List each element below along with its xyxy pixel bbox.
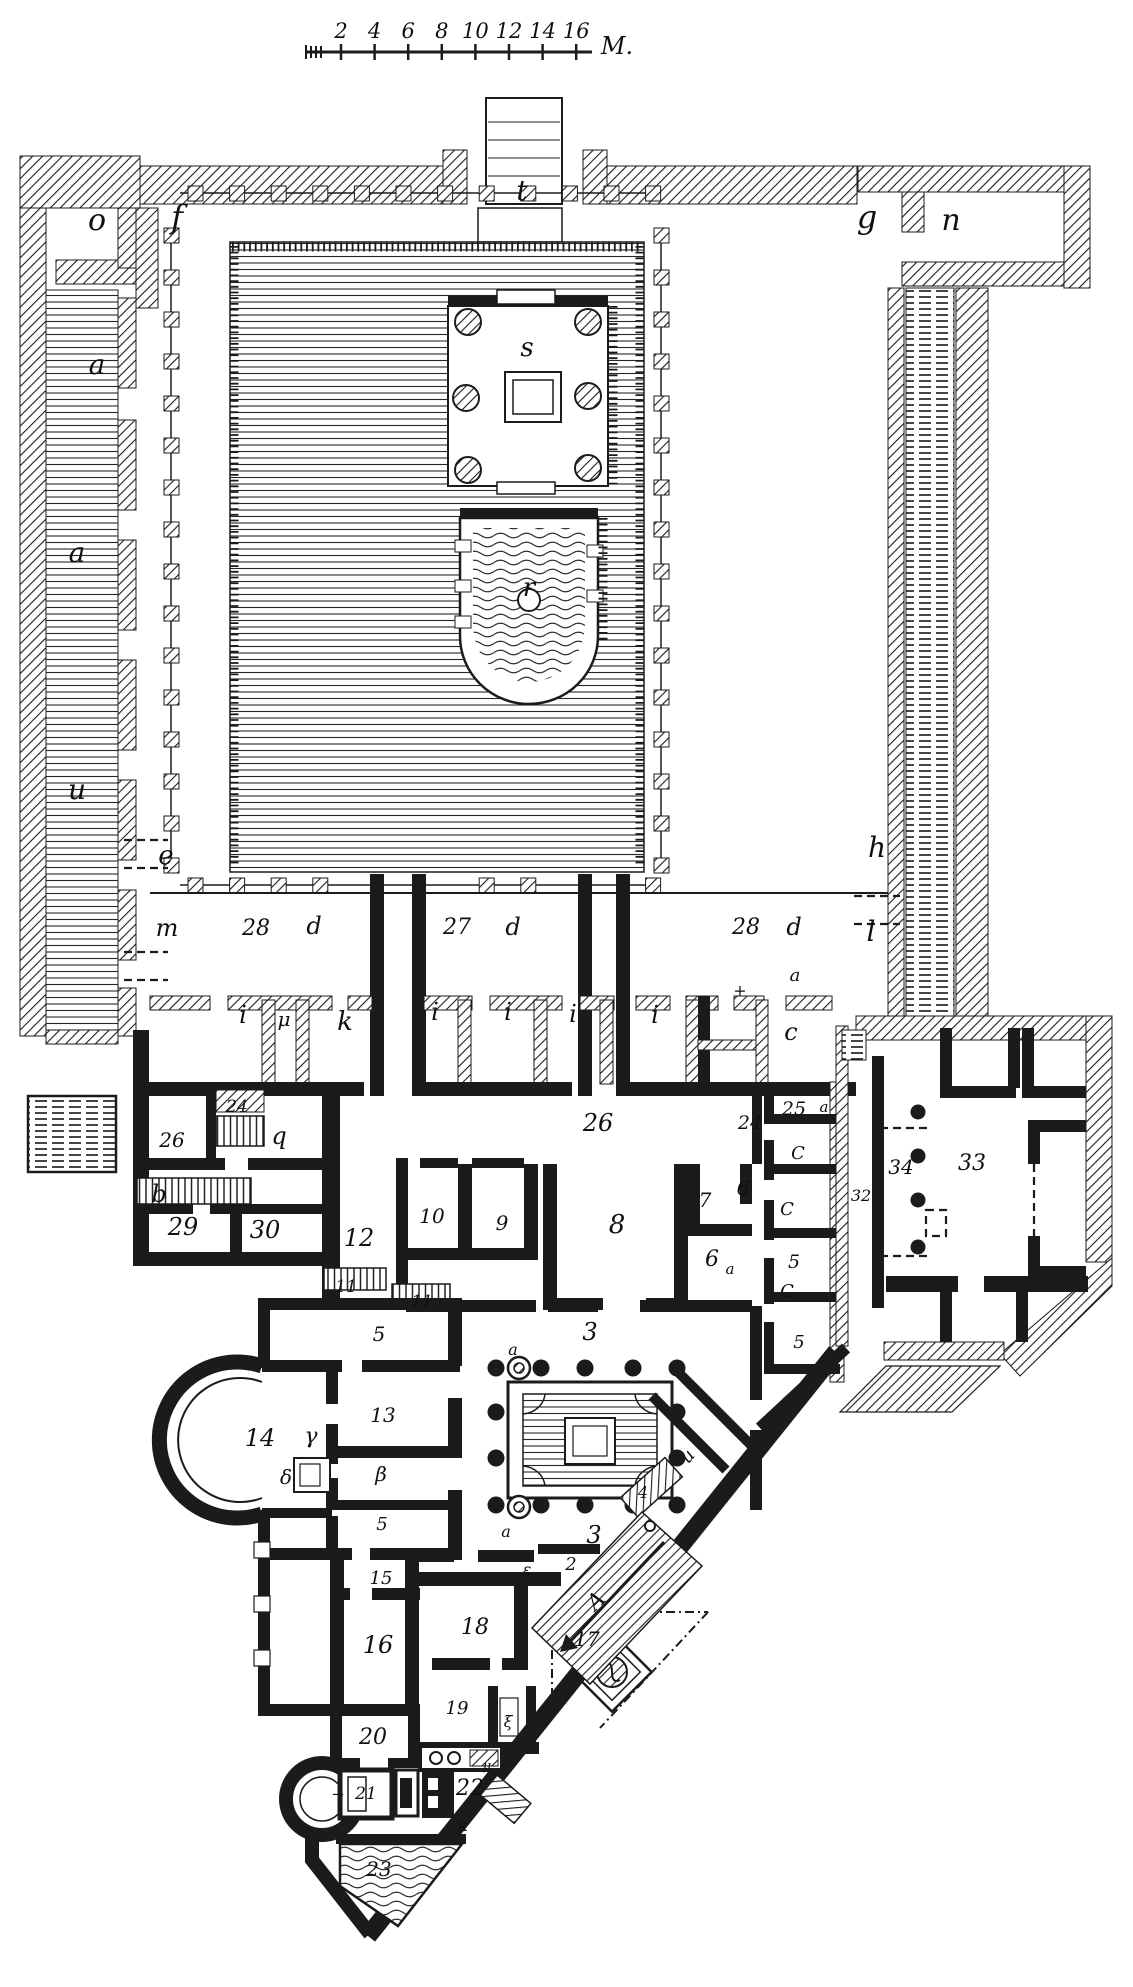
pillar: [271, 878, 286, 893]
pillar: [646, 878, 661, 893]
plan-label-ε: ε: [523, 1560, 532, 1579]
pillar: [654, 816, 669, 831]
plan-label-5: 5: [793, 1332, 804, 1353]
structure-s: [448, 290, 613, 494]
plan-label-7: 7: [699, 1188, 712, 1212]
plan-label-d: d: [786, 913, 801, 941]
plan-label-a: a: [790, 965, 801, 986]
plan-label-n: n: [941, 203, 960, 238]
plan-label-25: 25: [781, 1098, 806, 1120]
pillar: [164, 774, 179, 789]
plan-label-28: 28: [241, 916, 270, 941]
scale-numbers: 246810121416: [333, 19, 589, 43]
scale-tick-label-10: 10: [462, 19, 489, 43]
structure-r: [455, 508, 603, 704]
plan-label-c: c: [784, 1018, 797, 1046]
pillar: [164, 438, 179, 453]
pillar: [164, 480, 179, 495]
staircase-24: [216, 1116, 264, 1146]
plan-label-a: a: [69, 536, 86, 569]
peristyle-column-dot: [533, 1497, 550, 1514]
peristyle-column-dot: [577, 1360, 594, 1377]
plan-label-3: 3: [582, 1318, 597, 1346]
plan-label-i: i: [504, 998, 512, 1026]
plan-label-u: u: [68, 773, 86, 806]
pillar: [230, 878, 245, 893]
plan-label-28: 28: [731, 915, 760, 940]
pillar: [313, 186, 328, 201]
plan-label-a: a: [501, 1522, 511, 1541]
column-dot: [911, 1105, 926, 1120]
right-wing: [836, 1016, 1112, 1376]
plan-label-q: q: [271, 1122, 286, 1150]
peristyle-column-dot: [488, 1404, 505, 1421]
plan-label-C: C: [780, 1199, 794, 1220]
scale-tick-label-8: 8: [435, 19, 448, 43]
plan-label-11: 11: [335, 1277, 357, 1297]
plan-label-h: h: [868, 831, 886, 864]
pillar: [654, 396, 669, 411]
pillar: [654, 228, 669, 243]
plan-label-26: 26: [158, 1128, 185, 1152]
pillar: [479, 186, 494, 201]
plan-label-11: 11: [411, 1292, 433, 1312]
pillar: [654, 564, 669, 579]
plan-label-6: 6: [705, 1247, 719, 1272]
pillar: [604, 186, 619, 201]
pillar: [271, 186, 286, 201]
pillar: [164, 648, 179, 663]
plan-label-g: g: [857, 198, 877, 236]
plan-label-22: 22: [455, 1776, 484, 1801]
plan-label-6: 6: [737, 1176, 750, 1200]
oven: [422, 1770, 454, 1818]
scale-tick-label-14: 14: [529, 19, 556, 43]
plan-label-C: C: [780, 1281, 794, 1302]
plan-label-3: 3: [586, 1521, 601, 1549]
pillar: [654, 606, 669, 621]
plan-label-δ: δ: [280, 1465, 292, 1489]
column: [575, 309, 601, 335]
plan-label-o: o: [88, 203, 106, 238]
plan-label-i: i: [651, 1001, 659, 1029]
plan-label-26: 26: [582, 1109, 614, 1137]
scale-tick-label-12: 12: [496, 19, 523, 43]
plan-label-14: 14: [245, 1424, 276, 1452]
plan-label-5: 5: [373, 1322, 386, 1346]
plan-label-12: 12: [344, 1224, 375, 1252]
pillar: [654, 858, 669, 873]
pillar: [479, 878, 494, 893]
plan-label-23: 23: [365, 1857, 391, 1881]
pillar: [164, 354, 179, 369]
plan-label-33: 33: [958, 1151, 986, 1176]
plan-label-ξ: ξ: [504, 1712, 514, 1731]
plan-label-i: i: [569, 1000, 577, 1028]
plan-label-5: 5: [788, 1251, 800, 1273]
plan-label-k: k: [337, 1007, 353, 1037]
pillar: [188, 878, 203, 893]
plan-label-m: m: [156, 914, 179, 942]
plan-label-γ: γ: [304, 1424, 318, 1449]
plan-label-2: 2: [564, 1554, 576, 1575]
plan-label-d: d: [306, 912, 321, 940]
pillar: [654, 522, 669, 537]
plan-label-μ: μ: [278, 1007, 291, 1031]
pillar: [230, 186, 245, 201]
plan-label-b: b: [151, 1180, 166, 1208]
peristyle-column-dot: [488, 1360, 505, 1377]
pillar: [654, 648, 669, 663]
plan-label-i: i: [431, 998, 439, 1026]
plan-label-29: 29: [167, 1213, 199, 1241]
pillar: [654, 774, 669, 789]
plan-label-i: i: [239, 1001, 247, 1029]
column-dot: [911, 1240, 926, 1255]
engraving-page: 246810121416 M.: [0, 0, 1133, 1987]
pillar: [164, 816, 179, 831]
plan-label-a: a: [89, 348, 106, 381]
plan-label-d: d: [505, 913, 520, 941]
pillar: [164, 522, 179, 537]
peristyle-column-dot: [625, 1360, 642, 1377]
plan-label-e: e: [158, 841, 173, 871]
column: [455, 309, 481, 335]
plan-label-13: 13: [370, 1403, 395, 1427]
plan-label-15: 15: [370, 1568, 393, 1589]
plan-label-24: 24: [737, 1112, 762, 1134]
plan-label-β: β: [374, 1462, 387, 1486]
pillar: [164, 606, 179, 621]
plan-label-18: 18: [461, 1615, 489, 1640]
plan-label-10: 10: [419, 1204, 445, 1228]
column-dot: [911, 1193, 926, 1208]
pillar: [654, 438, 669, 453]
plan-label-27: 27: [442, 915, 471, 940]
column: [575, 383, 601, 409]
se-street: [368, 1348, 1000, 1936]
peristyle-column-dot: [669, 1497, 686, 1514]
pillar: [654, 270, 669, 285]
scale-unit: M.: [600, 32, 633, 60]
pillar: [164, 564, 179, 579]
pillar: [188, 186, 203, 201]
pillar: [438, 186, 453, 201]
plan-label-32: 32: [851, 1186, 871, 1205]
plan-label-a: a: [508, 1340, 518, 1359]
pillar: [654, 690, 669, 705]
entrance-steps: [478, 98, 562, 242]
plan-label-→: →: [332, 1787, 344, 1803]
pillar: [654, 312, 669, 327]
plan-label-t: t: [516, 174, 528, 207]
plan-label-C: C: [791, 1143, 805, 1164]
pillar: [164, 732, 179, 747]
pillar: [562, 186, 577, 201]
peristyle-column-dot: [577, 1497, 594, 1514]
pillar: [164, 312, 179, 327]
pillar: [164, 270, 179, 285]
atrium-area: [324, 1082, 762, 1310]
peristyle-column-dot: [488, 1497, 505, 1514]
plan-label-16: 16: [363, 1631, 394, 1659]
pillar: [654, 480, 669, 495]
plan-label-s: s: [520, 333, 533, 363]
floor-plan-svg: 246810121416 M.: [0, 0, 1133, 1987]
plan-label-a: a: [726, 1260, 735, 1278]
plan-label-4: 4: [637, 1483, 648, 1502]
pillar: [354, 186, 369, 201]
scale-tick-label-16: 16: [563, 19, 590, 43]
plan-label-30: 30: [250, 1216, 281, 1244]
column: [453, 385, 479, 411]
peristyle-column-dot: [488, 1450, 505, 1467]
scale-bar: 246810121416 M.: [306, 19, 633, 60]
plan-label-r: r: [523, 573, 537, 603]
plan-label-μ: μ: [483, 1759, 491, 1774]
plan-label-a: a: [820, 1098, 829, 1116]
pillar: [396, 186, 411, 201]
pillar: [521, 878, 536, 893]
plan-label-21: 21: [354, 1784, 377, 1804]
pillar: [313, 878, 328, 893]
plan-label-24: 24: [225, 1097, 248, 1117]
scale-tick-label-6: 6: [402, 19, 415, 43]
peristyle-column-dot: [533, 1360, 550, 1377]
pillar: [164, 690, 179, 705]
pillar: [654, 354, 669, 369]
plan-label-5: 5: [376, 1514, 387, 1535]
plan-label-19: 19: [446, 1698, 469, 1719]
plan-label-34: 34: [888, 1155, 913, 1179]
plan-label-+: +: [733, 981, 746, 1000]
plan-label-l: l: [867, 915, 876, 948]
scale-tick-label-4: 4: [367, 19, 381, 43]
pillar: [654, 732, 669, 747]
column: [575, 455, 601, 481]
plan-label-8: 8: [609, 1210, 626, 1240]
column: [455, 457, 481, 483]
scale-tick-label-2: 2: [333, 19, 347, 43]
plan-label-17: 17: [574, 1627, 600, 1651]
pillar: [164, 396, 179, 411]
pillar: [646, 186, 661, 201]
plan-label-κ: κ: [457, 1816, 469, 1835]
plan-label-9: 9: [496, 1211, 509, 1235]
plan-label-20: 20: [358, 1725, 387, 1750]
cell-row: [140, 996, 856, 1096]
